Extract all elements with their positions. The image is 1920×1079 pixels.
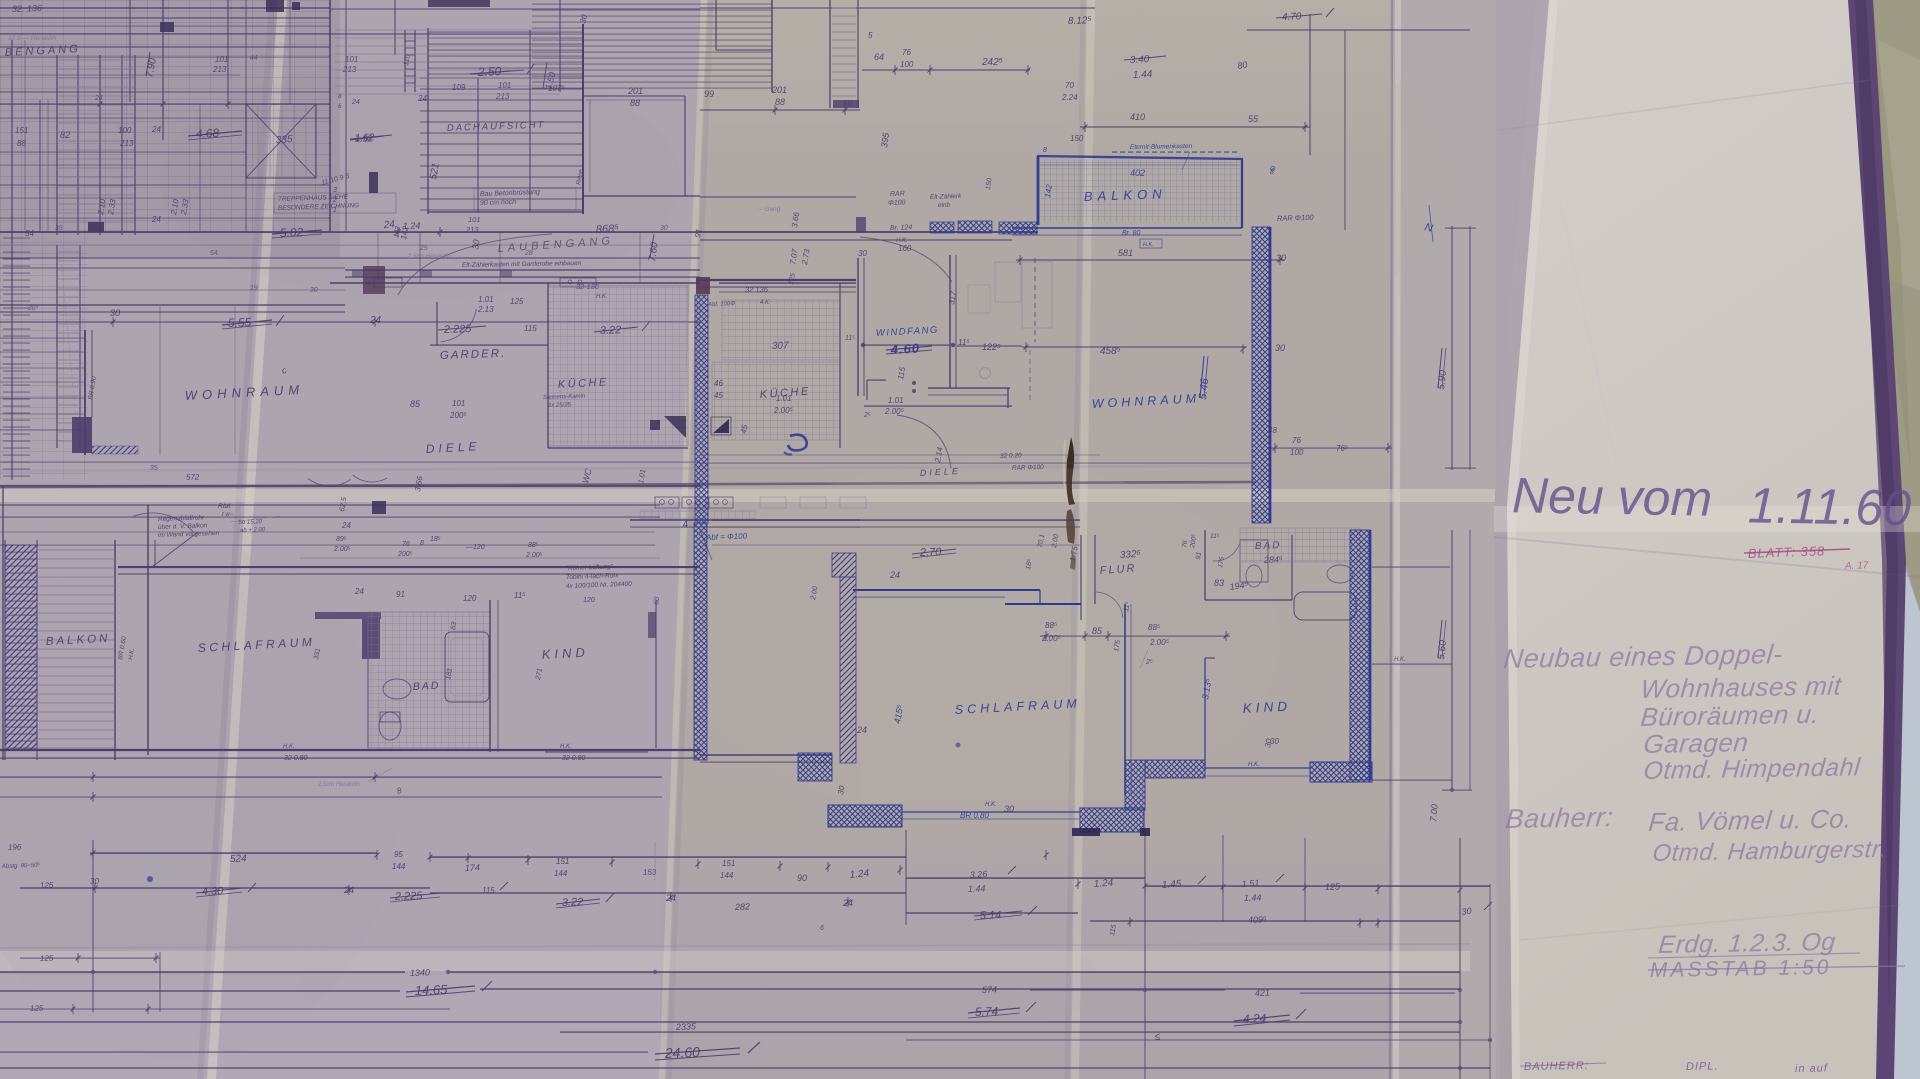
svg-text:83: 83 <box>1214 578 1224 588</box>
svg-text:282: 282 <box>734 901 750 912</box>
svg-text:Θ: Θ <box>1270 166 1276 173</box>
svg-text:101: 101 <box>452 399 465 408</box>
svg-text:2x 25/25: 2x 25/25 <box>547 402 572 409</box>
svg-text:402: 402 <box>1130 168 1145 178</box>
svg-text:85: 85 <box>410 399 421 409</box>
svg-text:24: 24 <box>889 570 900 580</box>
svg-text:88: 88 <box>630 98 640 108</box>
svg-text:3.26: 3.26 <box>969 869 987 880</box>
svg-text:24: 24 <box>351 99 360 106</box>
svg-text:H.K.: H.K. <box>560 744 572 750</box>
svg-text:125: 125 <box>1325 881 1341 892</box>
svg-text:201: 201 <box>627 86 643 96</box>
svg-text:35: 35 <box>55 225 63 232</box>
svg-text:142: 142 <box>1043 183 1054 198</box>
svg-text:30: 30 <box>110 308 120 318</box>
svg-text:91: 91 <box>396 590 405 599</box>
svg-text:1.24: 1.24 <box>1093 878 1114 890</box>
svg-text:2⁵: 2⁵ <box>863 412 871 419</box>
svg-text:H.K.: H.K. <box>1143 242 1154 248</box>
svg-text:11⁵: 11⁵ <box>845 335 855 342</box>
svg-text:196: 196 <box>8 843 22 852</box>
svg-text:30: 30 <box>1275 343 1285 353</box>
svg-text:109: 109 <box>452 83 466 92</box>
svg-text:24: 24 <box>341 521 351 530</box>
svg-text:332⁵: 332⁵ <box>1120 549 1141 561</box>
svg-text:1.51: 1.51 <box>1241 878 1259 889</box>
svg-text:200⁵: 200⁵ <box>449 411 467 420</box>
svg-text:120: 120 <box>583 597 595 604</box>
svg-text:200⁵: 200⁵ <box>397 551 413 558</box>
svg-text:4 K: 4 K <box>760 300 770 306</box>
svg-text:122⁵: 122⁵ <box>982 342 1001 352</box>
svg-text:t w−: t w− <box>222 512 234 518</box>
svg-text:Neu vom: Neu vom <box>1512 467 1713 526</box>
svg-text:410: 410 <box>1130 112 1145 122</box>
svg-text:30: 30 <box>1276 253 1286 263</box>
svg-text:Eternit-Blumenkasten: Eternit-Blumenkasten <box>1130 143 1193 151</box>
svg-text:44: 44 <box>250 55 258 62</box>
svg-text:174: 174 <box>465 862 480 873</box>
svg-text:55: 55 <box>1248 114 1259 124</box>
svg-text:8: 8 <box>1043 147 1047 154</box>
svg-text:BAD: BAD <box>413 680 441 693</box>
svg-text:2,5cm Heraklith: 2,5cm Heraklith <box>407 254 450 260</box>
svg-text:2⁵: 2⁵ <box>1145 659 1153 666</box>
svg-text:Otmd. Himpendahl: Otmd. Himpendahl <box>1642 753 1862 785</box>
svg-text:5: 5 <box>868 31 873 40</box>
svg-text:76⁵: 76⁵ <box>1336 444 1349 453</box>
svg-text:30: 30 <box>470 239 482 251</box>
svg-text:30: 30 <box>1270 737 1279 746</box>
svg-text:151: 151 <box>722 859 735 868</box>
svg-text:91: 91 <box>1195 551 1203 560</box>
svg-text:Garagen: Garagen <box>1642 727 1749 759</box>
svg-text:50: 50 <box>843 99 852 108</box>
svg-text:BAUHERR:: BAUHERR: <box>1524 1060 1589 1073</box>
svg-text:Fa. Vömel u. Co.: Fa. Vömel u. Co. <box>1647 804 1853 837</box>
svg-text:1340: 1340 <box>410 967 430 978</box>
svg-text:88⁵: 88⁵ <box>1148 623 1161 632</box>
svg-text:2.00⁵: 2.00⁵ <box>773 406 794 415</box>
svg-text:100: 100 <box>900 60 914 69</box>
svg-text:70: 70 <box>1065 81 1074 90</box>
svg-text:144: 144 <box>554 869 568 878</box>
svg-text:89⁵: 89⁵ <box>336 536 347 543</box>
svg-text:H.K.: H.K. <box>1248 762 1260 768</box>
svg-text:125: 125 <box>510 297 524 306</box>
svg-text:144: 144 <box>720 871 734 880</box>
svg-text:88⁵: 88⁵ <box>528 542 539 549</box>
svg-text:36⁵: 36⁵ <box>28 305 39 312</box>
svg-text:1.01: 1.01 <box>888 396 904 405</box>
svg-text:BALKON: BALKON <box>1084 186 1167 204</box>
svg-text:2,5cm Heraklith: 2,5cm Heraklith <box>317 782 360 788</box>
svg-text:242⁵: 242⁵ <box>981 57 1003 68</box>
svg-text:572: 572 <box>186 473 200 482</box>
svg-text:120: 120 <box>463 594 477 603</box>
svg-text:Elt-Zählerk: Elt-Zählerk <box>930 193 962 201</box>
svg-text:28: 28 <box>524 250 533 257</box>
svg-text:KIND: KIND <box>1242 698 1291 716</box>
svg-text:85: 85 <box>1092 626 1103 636</box>
svg-text:24: 24 <box>856 725 867 735</box>
svg-text:100: 100 <box>1290 448 1304 457</box>
svg-text:Neubau eines Doppel-: Neubau eines Doppel- <box>1502 638 1784 674</box>
svg-text:1.01: 1.01 <box>776 394 792 403</box>
svg-text:45: 45 <box>714 391 723 400</box>
svg-text:46: 46 <box>714 379 723 388</box>
svg-text:88: 88 <box>775 97 785 107</box>
svg-text:24: 24 <box>382 219 395 231</box>
svg-text:RAR Φ100: RAR Φ100 <box>1012 464 1044 472</box>
svg-text:30: 30 <box>660 225 668 232</box>
svg-text:So 15,20: So 15,20 <box>238 519 263 526</box>
svg-text:→ Gang: → Gang <box>756 206 781 213</box>
svg-text:3.40: 3.40 <box>1130 54 1150 66</box>
svg-text:2335: 2335 <box>675 1021 697 1032</box>
svg-text:421: 421 <box>1255 987 1270 998</box>
svg-text:458⁵: 458⁵ <box>1100 346 1121 357</box>
svg-text:48: 48 <box>1268 426 1277 435</box>
svg-text:6: 6 <box>338 103 342 110</box>
svg-text:30: 30 <box>310 287 318 294</box>
svg-text:H.K.: H.K. <box>985 802 997 808</box>
svg-text:213: 213 <box>342 65 357 74</box>
svg-text:101: 101 <box>345 55 358 64</box>
svg-text:1.44: 1.44 <box>1133 69 1153 81</box>
svg-text:25: 25 <box>419 245 428 252</box>
svg-text:90: 90 <box>797 873 807 883</box>
svg-text:Br. 124: Br. 124 <box>890 224 913 232</box>
svg-text:Abstg. 90−50⁵: Abstg. 90−50⁵ <box>1 862 41 870</box>
svg-text:83: 83 <box>450 621 458 630</box>
svg-text:11⁵: 11⁵ <box>1210 533 1220 540</box>
svg-text:24: 24 <box>354 587 364 596</box>
svg-text:150: 150 <box>1070 134 1084 143</box>
svg-text:76: 76 <box>402 541 410 548</box>
svg-text:32 0.20: 32 0.20 <box>1000 452 1022 460</box>
svg-text:GARDER.: GARDER. <box>440 348 507 362</box>
svg-text:R∆K: R∆K <box>218 503 232 510</box>
svg-text:88⁵: 88⁵ <box>1045 621 1058 630</box>
svg-text:581: 581 <box>1118 248 1133 258</box>
svg-text:60: 60 <box>653 596 661 605</box>
svg-text:2.00⁵: 2.00⁵ <box>884 407 905 416</box>
svg-text:99: 99 <box>704 89 714 99</box>
svg-text:BR 0.80: BR 0.80 <box>960 811 989 820</box>
svg-text:2.00⁵: 2.00⁵ <box>1149 638 1170 647</box>
svg-text:1.11.60: 1.11.60 <box>1747 477 1911 536</box>
svg-text:30: 30 <box>1461 906 1472 917</box>
svg-text:125: 125 <box>40 881 54 890</box>
svg-text:201: 201 <box>771 85 787 95</box>
svg-text:30: 30 <box>1004 804 1014 814</box>
svg-text:RAR: RAR <box>890 190 905 198</box>
svg-text:ab + 2.00: ab + 2.00 <box>240 527 266 534</box>
svg-text:24: 24 <box>417 94 427 103</box>
svg-text:91: 91 <box>693 228 703 238</box>
svg-text:115: 115 <box>482 886 495 895</box>
svg-text:8: 8 <box>420 540 424 547</box>
svg-text:64: 64 <box>874 52 884 62</box>
svg-text:24: 24 <box>94 95 103 102</box>
svg-text:8.12⁵: 8.12⁵ <box>1068 15 1092 27</box>
svg-text:—120: —120 <box>465 544 485 551</box>
svg-text:Otmd. Hamburgerstr.: Otmd. Hamburgerstr. <box>1651 836 1888 867</box>
svg-text:Abf = Φ100: Abf = Φ100 <box>705 532 748 542</box>
svg-text:76: 76 <box>1292 436 1301 445</box>
svg-text:1.45: 1.45 <box>1161 879 1182 891</box>
svg-text:1.01: 1.01 <box>478 295 494 304</box>
svg-text:76: 76 <box>902 48 911 57</box>
svg-text:FLUR: FLUR <box>1099 562 1136 577</box>
svg-text:Bauherr:: Bauherr: <box>1504 801 1614 834</box>
svg-text:409⁵: 409⁵ <box>1248 914 1267 925</box>
svg-text:Br. 80: Br. 80 <box>1122 230 1141 237</box>
svg-text:in auf: in auf <box>1795 1062 1828 1075</box>
svg-text:DIPL.: DIPL. <box>1686 1060 1719 1073</box>
svg-text:32 0.80: 32 0.80 <box>284 755 307 762</box>
svg-text:H.K.: H.K. <box>1394 657 1406 663</box>
svg-text:151: 151 <box>556 857 569 866</box>
svg-text:19: 19 <box>250 285 258 292</box>
svg-text:95: 95 <box>394 850 403 859</box>
svg-text:7.00: 7.00 <box>1428 804 1440 822</box>
svg-text:Φ100: Φ100 <box>888 199 906 207</box>
svg-text:101: 101 <box>468 215 481 224</box>
svg-text:A. 17: A. 17 <box>1844 560 1869 572</box>
svg-text:H.K.: H.K. <box>283 744 295 750</box>
svg-text:6: 6 <box>820 925 824 932</box>
svg-text:1.44: 1.44 <box>1244 892 1262 903</box>
svg-text:574: 574 <box>982 984 997 995</box>
svg-text:RAR Φ100: RAR Φ100 <box>1277 213 1315 223</box>
svg-text:2.00⁵: 2.00⁵ <box>333 546 351 553</box>
svg-text:11⁵: 11⁵ <box>514 591 526 600</box>
svg-text:90 cm hoch: 90 cm hoch <box>480 199 517 207</box>
svg-text:2.24: 2.24 <box>1061 93 1078 102</box>
svg-text:2.13: 2.13 <box>477 305 494 314</box>
svg-text:868⁵: 868⁵ <box>596 223 620 236</box>
svg-text:125: 125 <box>30 1004 44 1013</box>
svg-text:30: 30 <box>858 249 867 258</box>
svg-text:144: 144 <box>392 862 406 871</box>
svg-text:18⁵: 18⁵ <box>430 536 441 543</box>
svg-text:115: 115 <box>524 324 537 333</box>
svg-text:32 136: 32 136 <box>745 285 769 294</box>
svg-text:einb: einb <box>938 202 951 209</box>
svg-text:54: 54 <box>210 250 218 257</box>
svg-text:DIELE: DIELE <box>425 439 480 456</box>
svg-text:213: 213 <box>465 225 479 234</box>
svg-text:524: 524 <box>230 853 247 865</box>
svg-text:1.24: 1.24 <box>849 868 870 881</box>
svg-text:32 0.80: 32 0.80 <box>562 755 585 762</box>
svg-text:KIND: KIND <box>541 645 589 662</box>
svg-text:Abf. 100Φ: Abf. 100Φ <box>707 301 736 308</box>
svg-text:11⁵: 11⁵ <box>958 338 970 347</box>
svg-text:80: 80 <box>1237 59 1249 71</box>
svg-text:35: 35 <box>150 465 158 472</box>
svg-text:125: 125 <box>40 954 54 963</box>
svg-text:5.14: 5.14 <box>980 909 1002 922</box>
svg-text:1.44: 1.44 <box>968 883 986 894</box>
